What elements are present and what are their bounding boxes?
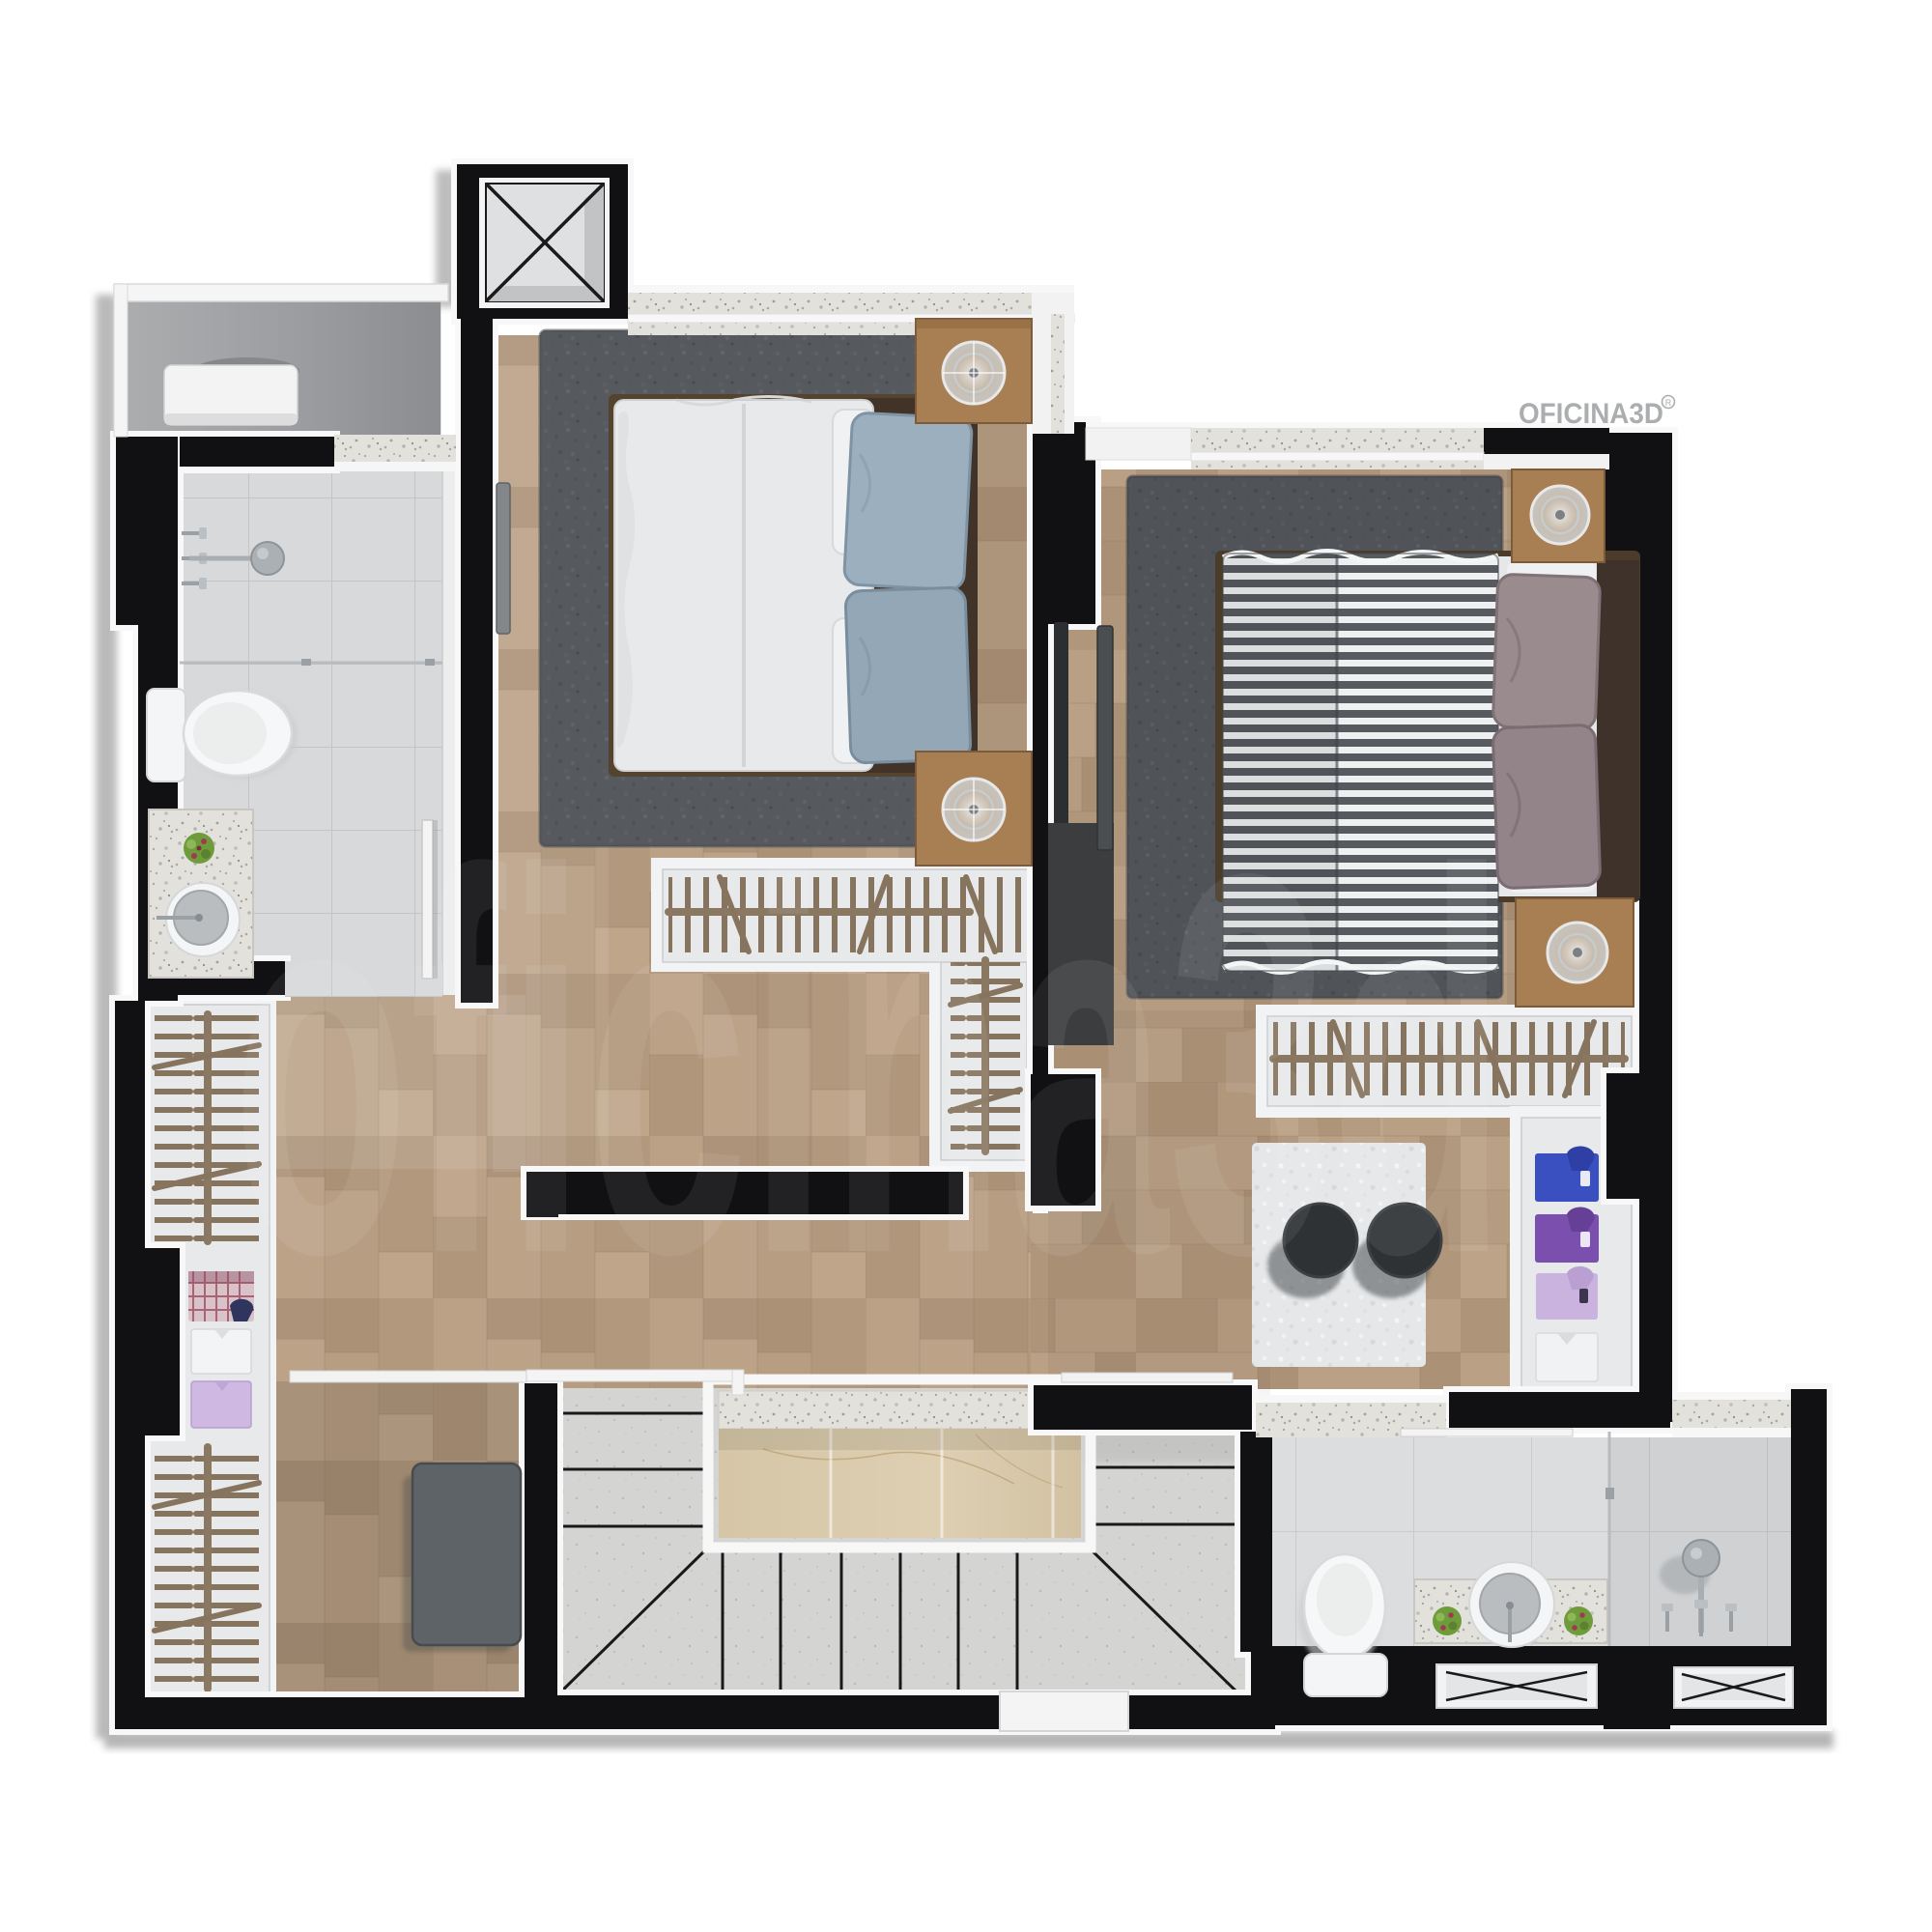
svg-text:OFICINA3D: OFICINA3D [1519,398,1663,430]
svg-text:R: R [1665,398,1672,408]
svg-text:oficina3d: oficina3d [232,761,1507,1366]
